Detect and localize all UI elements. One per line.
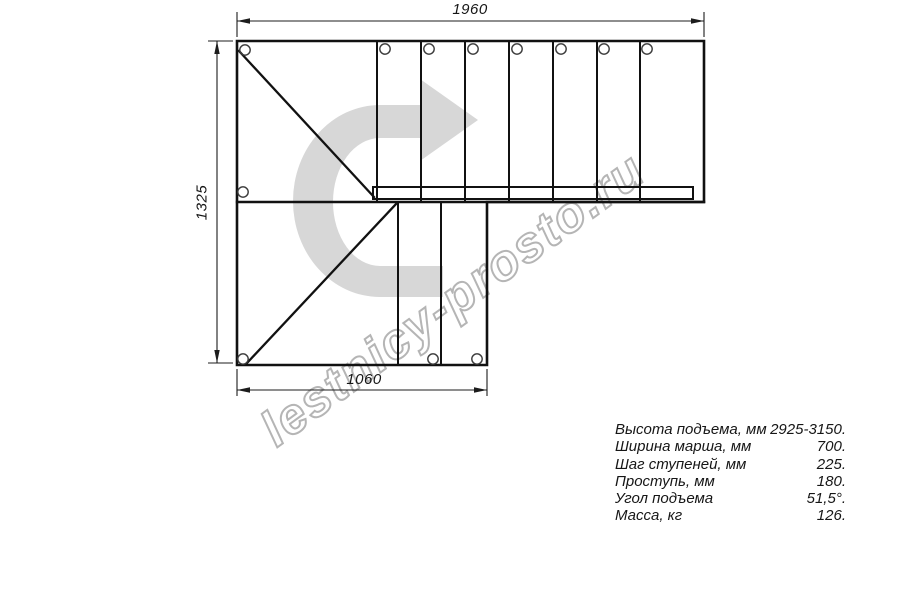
- spec-value: 180.: [817, 473, 846, 490]
- spec-label: Высота подъема, мм: [615, 421, 767, 438]
- dimension-arrowheads: [214, 18, 704, 392]
- spec-value: 2925-3150.: [770, 421, 846, 438]
- spec-label: Масса, кг: [615, 507, 682, 524]
- spec-row: Угол подъема 51,5°.: [615, 490, 846, 507]
- spec-row: Проступь, мм 180.: [615, 473, 846, 490]
- spec-value: 126.: [817, 507, 846, 524]
- spec-value: 51,5°.: [807, 490, 846, 507]
- spec-row: Ширина марша, мм 700.: [615, 438, 846, 455]
- dimension-label-left-height: 1325: [194, 153, 211, 253]
- spec-label: Шаг ступеней, мм: [615, 456, 746, 473]
- spec-row: Масса, кг 126.: [615, 507, 846, 524]
- spec-value: 700.: [817, 438, 846, 455]
- staircase-drawing-page: lestnicy-prosto.ru: [0, 0, 900, 600]
- dimension-label-top-width: 1960: [420, 1, 520, 18]
- spec-label: Угол подъема: [615, 490, 713, 507]
- spec-row: Высота подъема, мм 2925-3150.: [615, 421, 846, 438]
- dimension-label-bottom-width: 1060: [314, 371, 414, 388]
- spec-value: 225.: [817, 456, 846, 473]
- spec-row: Шаг ступеней, мм 225.: [615, 456, 846, 473]
- spec-label: Ширина марша, мм: [615, 438, 751, 455]
- specification-table: Высота подъема, мм 2925-3150. Ширина мар…: [615, 421, 846, 525]
- spec-label: Проступь, мм: [615, 473, 715, 490]
